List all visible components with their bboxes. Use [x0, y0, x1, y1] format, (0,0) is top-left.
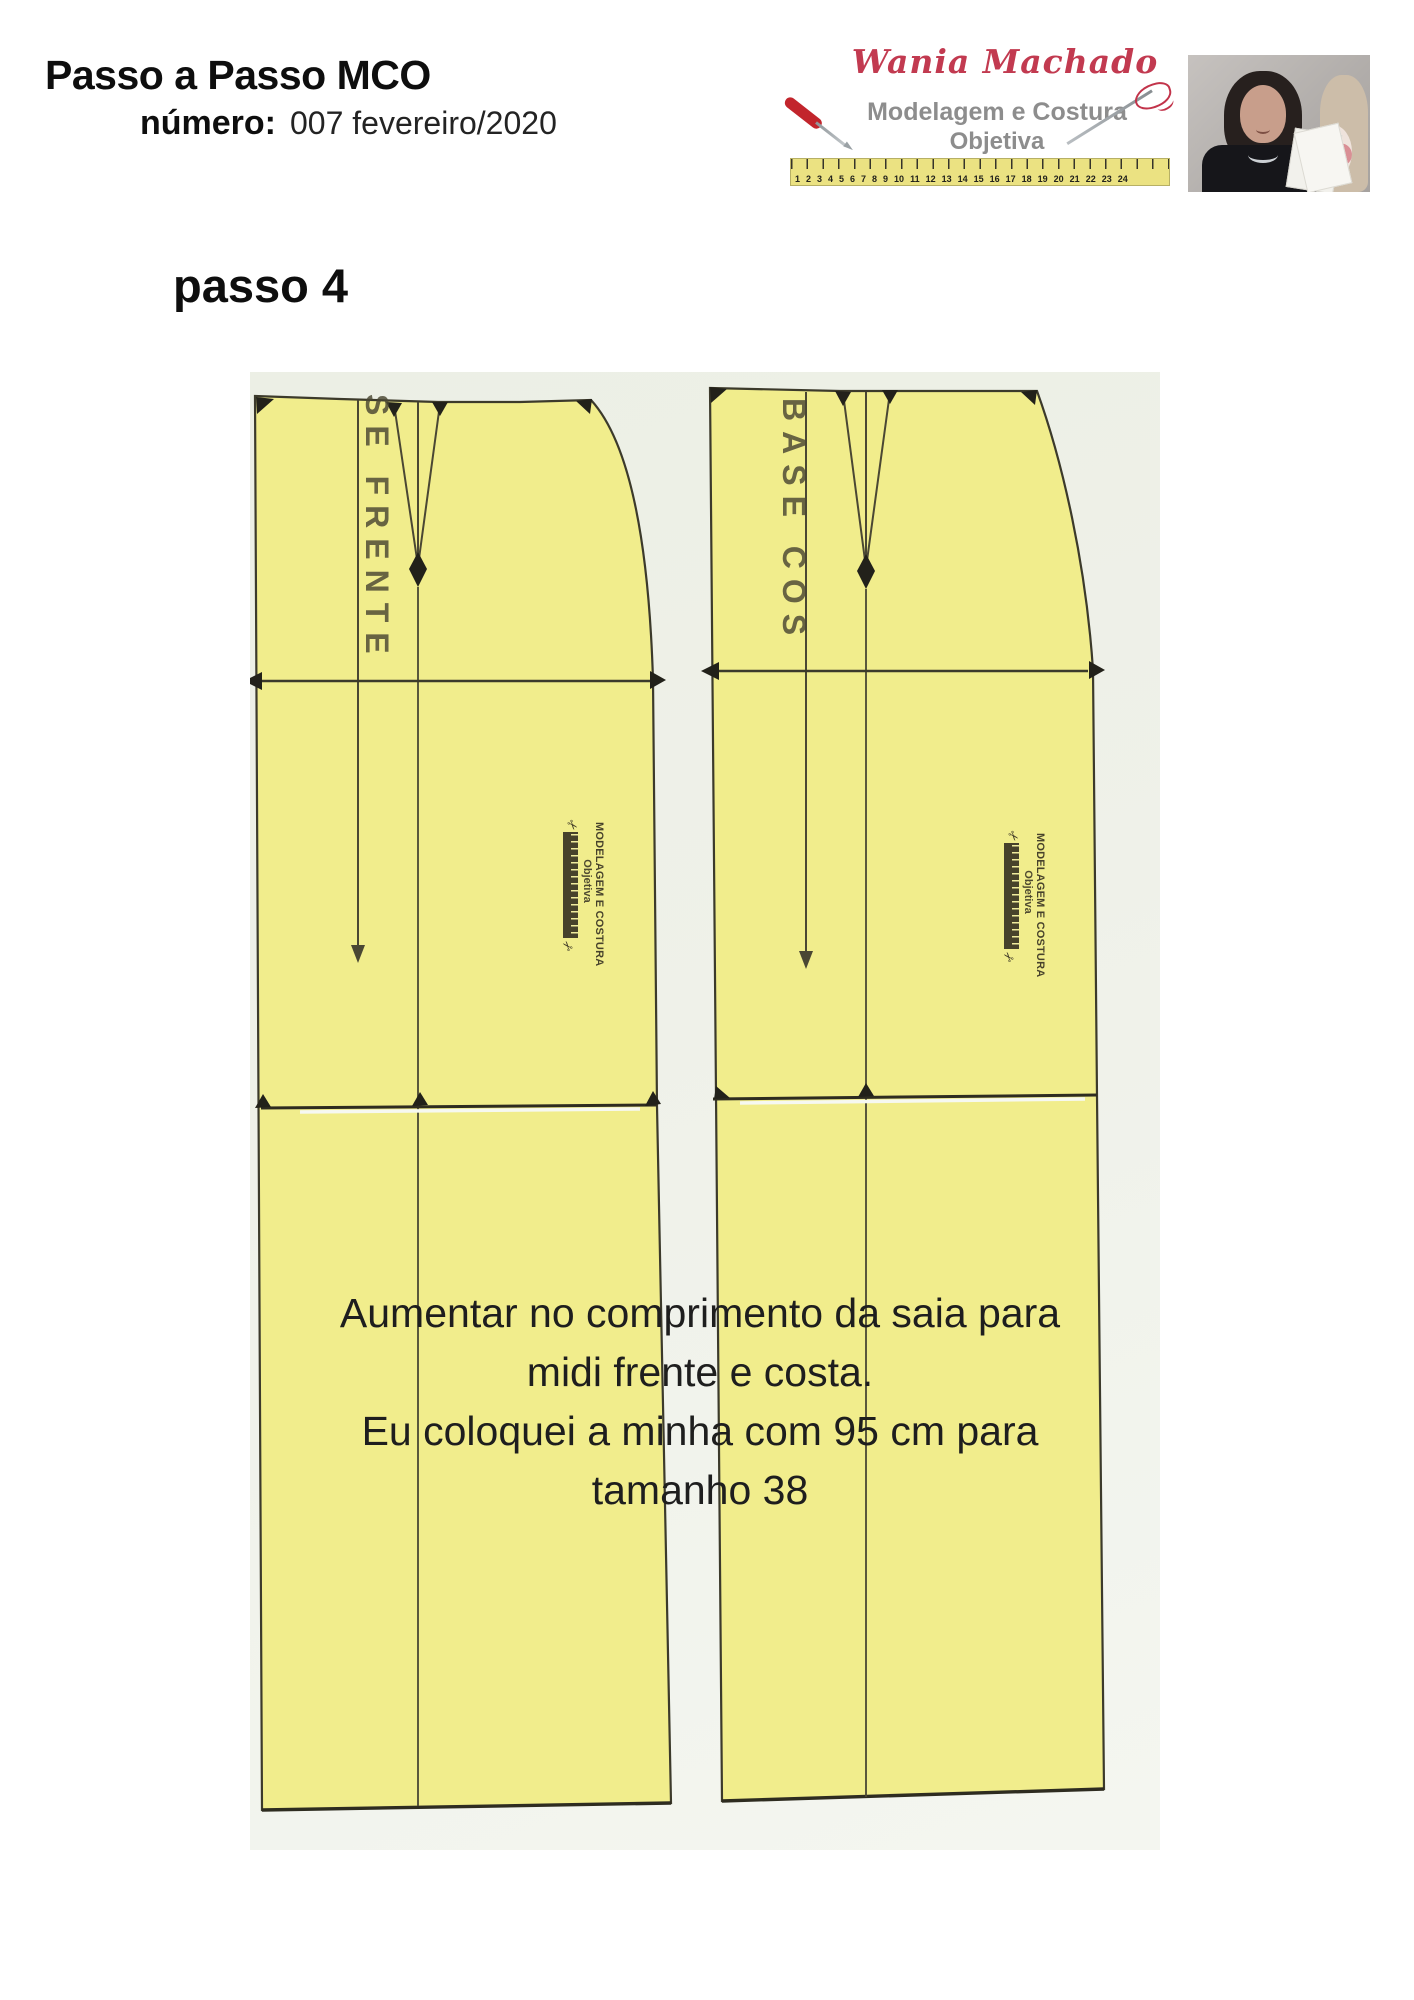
front-pattern-piece: SE FRENTE	[250, 394, 671, 1810]
author-photo	[1188, 55, 1370, 192]
stamp-ruler-icon: ✂ ✂	[1004, 843, 1019, 949]
necklace	[1248, 147, 1278, 163]
stamp-text-1: MODELAGEM E COSTURA	[1034, 833, 1046, 966]
note-line: tamanho 38	[285, 1461, 1115, 1520]
ruler-ticks	[791, 159, 1169, 169]
mco-stamp-front: MODELAGEM E COSTURA Objetiva ✂ ✂	[538, 822, 605, 955]
stamp-text-2: Objetiva	[581, 822, 593, 940]
brand-logo: Wania Machado Modelagem e Costura Objeti…	[632, 36, 1177, 188]
mco-stamp-back: MODELAGEM E COSTURA Objetiva ✂ ✂	[979, 833, 1046, 966]
note-line: midi frente e costa.	[285, 1343, 1115, 1402]
step-title: passo 4	[173, 258, 348, 313]
front-piece-label: SE FRENTE	[359, 394, 395, 664]
ruler-numbers: 1 2 3 4 5 6 7 8 9 10 11 12 13 14 15 16 1…	[795, 174, 1128, 184]
stamp-text-1: MODELAGEM E COSTURA	[593, 822, 605, 955]
note-line: Eu coloquei a minha com 95 cm para	[285, 1402, 1115, 1461]
face	[1240, 85, 1286, 143]
pattern-drawing: SE FRENTE	[250, 372, 1160, 1850]
issue-label: número:	[140, 104, 276, 142]
back-piece-label: BASE COS	[776, 398, 812, 645]
brand-name: Wania Machado	[840, 42, 1170, 81]
issue-line: número:007 fevereiro/2020	[140, 104, 557, 143]
smile	[1256, 125, 1270, 134]
scissors-icon: ✂	[558, 936, 577, 955]
ruler-strip-icon: 1 2 3 4 5 6 7 8 9 10 11 12 13 14 15 16 1…	[790, 158, 1170, 186]
pattern-scan: SE FRENTE	[250, 372, 1160, 1850]
stamp-text-2: Objetiva	[1022, 833, 1034, 951]
seam-ripper-icon	[784, 88, 870, 160]
issue-value: 007 fevereiro/2020	[290, 105, 557, 141]
page: { "header": { "title": "Passo a Passo MC…	[0, 0, 1414, 2000]
scissors-icon: ✂	[999, 947, 1018, 966]
instruction-note: Aumentar no comprimento da saia para mid…	[285, 1284, 1115, 1520]
note-line: Aumentar no comprimento da saia para	[285, 1284, 1115, 1343]
back-pattern-piece: BASE COS	[701, 387, 1105, 1801]
page-title: Passo a Passo MCO	[45, 52, 431, 99]
stamp-ruler-icon: ✂ ✂	[563, 832, 578, 938]
